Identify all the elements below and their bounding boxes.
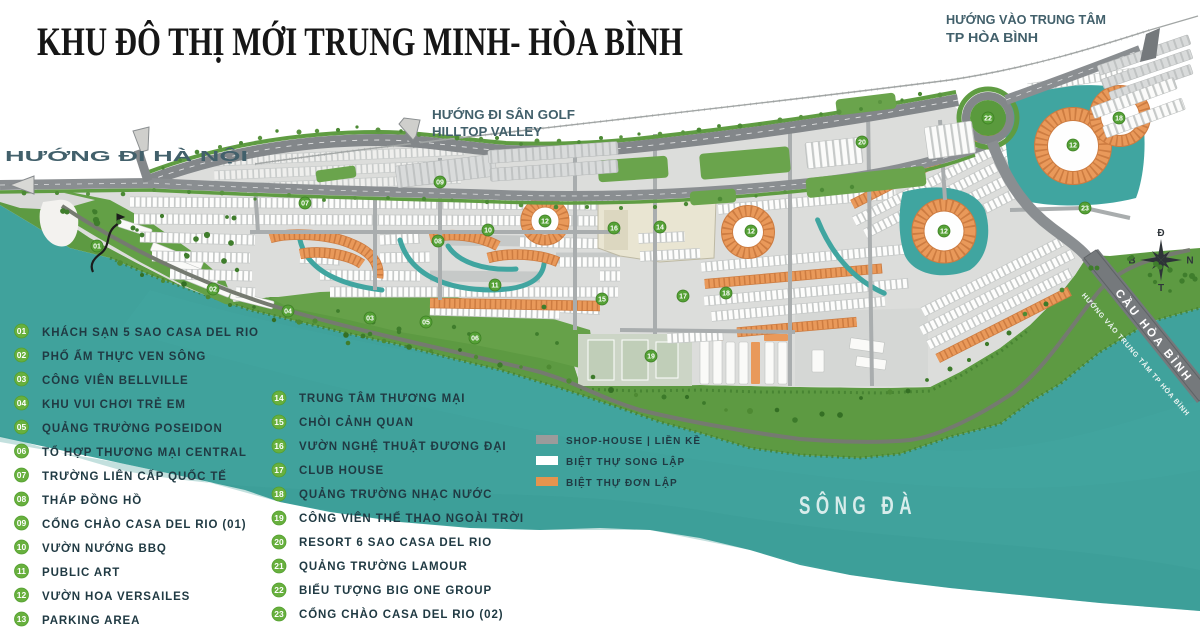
svg-text:07: 07 [17, 470, 27, 480]
svg-text:BIỆT THỰ ĐƠN LẬP: BIỆT THỰ ĐƠN LẬP [566, 476, 678, 489]
svg-text:03: 03 [17, 374, 27, 384]
svg-text:09: 09 [436, 180, 444, 187]
svg-text:10: 10 [17, 542, 27, 552]
svg-text:PARKING AREA: PARKING AREA [42, 615, 140, 627]
svg-text:12: 12 [940, 229, 948, 236]
svg-text:CÔNG VIÊN BELLVILLE: CÔNG VIÊN BELLVILLE [42, 374, 189, 387]
svg-text:CỔNG CHÀO CASA DEL RIO (01): CỔNG CHÀO CASA DEL RIO (01) [42, 518, 246, 531]
svg-text:QUẢNG TRƯỜNG POSEIDON: QUẢNG TRƯỜNG POSEIDON [42, 422, 223, 435]
svg-text:KHU VUI CHƠI TRẺ EM: KHU VUI CHƠI TRẺ EM [42, 398, 186, 411]
svg-text:02: 02 [209, 287, 217, 294]
svg-text:04: 04 [284, 309, 292, 316]
svg-text:TP HÒA BÌNH: TP HÒA BÌNH [946, 30, 1038, 45]
svg-text:01: 01 [17, 326, 27, 336]
svg-text:17: 17 [679, 294, 687, 301]
svg-text:12: 12 [541, 219, 549, 226]
svg-text:19: 19 [647, 354, 655, 361]
svg-text:HƯỚNG VÀO TRUNG TÂM: HƯỚNG VÀO TRUNG TÂM [946, 12, 1106, 27]
svg-text:10: 10 [484, 228, 492, 235]
svg-text:VƯỜN HOA VERSAILES: VƯỜN HOA VERSAILES [42, 590, 190, 603]
svg-text:Đ: Đ [1157, 228, 1164, 239]
svg-text:TRUNG TÂM THƯƠNG MẠI: TRUNG TÂM THƯƠNG MẠI [299, 392, 465, 405]
svg-text:23: 23 [1081, 206, 1089, 213]
svg-text:12: 12 [17, 590, 27, 600]
svg-text:08: 08 [434, 239, 442, 246]
svg-text:BIỂU TƯỢNG BIG ONE GROUP: BIỂU TƯỢNG BIG ONE GROUP [299, 584, 492, 597]
svg-text:09: 09 [17, 518, 27, 528]
svg-text:13: 13 [17, 614, 27, 624]
svg-text:11: 11 [17, 566, 26, 576]
svg-text:CLUB HOUSE: CLUB HOUSE [299, 465, 384, 477]
svg-text:HƯỚNG ĐI SÂN GOLF: HƯỚNG ĐI SÂN GOLF [432, 107, 575, 122]
svg-text:22: 22 [984, 116, 992, 123]
svg-text:CÔNG VIÊN THỂ THAO NGOÀI TRỜI: CÔNG VIÊN THỂ THAO NGOÀI TRỜI [299, 512, 524, 525]
svg-text:11: 11 [491, 283, 499, 290]
svg-text:N: N [1186, 256, 1193, 267]
svg-text:PUBLIC ART: PUBLIC ART [42, 567, 120, 579]
svg-text:03: 03 [366, 316, 374, 323]
svg-text:18: 18 [274, 489, 284, 499]
svg-text:SÔNG ĐÀ: SÔNG ĐÀ [799, 490, 917, 520]
svg-text:05: 05 [17, 422, 27, 432]
svg-text:QUẢNG TRƯỜNG LAMOUR: QUẢNG TRƯỜNG LAMOUR [299, 560, 468, 573]
svg-text:KHU ĐÔ THỊ MỚI TRUNG MINH- HÒA: KHU ĐÔ THỊ MỚI TRUNG MINH- HÒA BÌNH [37, 19, 683, 64]
svg-text:04: 04 [17, 398, 27, 408]
svg-text:19: 19 [274, 513, 284, 523]
svg-text:20: 20 [858, 140, 866, 147]
svg-text:12: 12 [747, 229, 755, 236]
svg-text:KHÁCH SẠN 5 SAO CASA DEL RIO: KHÁCH SẠN 5 SAO CASA DEL RIO [42, 326, 259, 339]
svg-text:12: 12 [1069, 143, 1077, 150]
svg-text:23: 23 [274, 609, 284, 619]
svg-text:SHOP-HOUSE | LIỀN KỀ: SHOP-HOUSE | LIỀN KỀ [566, 434, 701, 447]
svg-text:02: 02 [17, 350, 27, 360]
svg-text:HILLTOP VALLEY: HILLTOP VALLEY [432, 125, 543, 139]
svg-text:CỔNG CHÀO CASA DEL RIO (02): CỔNG CHÀO CASA DEL RIO (02) [299, 608, 503, 621]
svg-text:RESORT 6 SAO CASA DEL RIO: RESORT 6 SAO CASA DEL RIO [299, 537, 492, 549]
svg-text:18: 18 [1115, 116, 1123, 123]
svg-text:BIỆT THỰ SONG LẬP: BIỆT THỰ SONG LẬP [566, 455, 685, 468]
svg-text:22: 22 [274, 585, 284, 595]
svg-text:05: 05 [422, 320, 430, 327]
svg-text:CHÒI CẢNH QUAN: CHÒI CẢNH QUAN [299, 416, 414, 429]
svg-text:QUẢNG TRƯỜNG NHẠC NƯỚC: QUẢNG TRƯỜNG NHẠC NƯỚC [299, 488, 492, 501]
svg-text:17: 17 [274, 465, 284, 475]
svg-text:15: 15 [598, 297, 606, 304]
svg-text:TỔ HỢP THƯƠNG MẠI CENTRAL: TỔ HỢP THƯƠNG MẠI CENTRAL [42, 446, 247, 459]
svg-text:08: 08 [17, 494, 27, 504]
svg-text:TRƯỜNG LIÊN CẤP QUỐC TẾ: TRƯỜNG LIÊN CẤP QUỐC TẾ [42, 469, 227, 483]
svg-text:21: 21 [274, 561, 284, 571]
svg-text:THÁP ĐỒNG HỒ: THÁP ĐỒNG HỒ [42, 494, 142, 507]
svg-text:06: 06 [17, 446, 27, 456]
svg-text:15: 15 [274, 417, 284, 427]
svg-text:14: 14 [656, 225, 664, 232]
svg-text:VƯỜN NƯỚNG BBQ: VƯỜN NƯỚNG BBQ [42, 542, 167, 555]
svg-text:01: 01 [93, 244, 101, 251]
svg-text:16: 16 [274, 441, 284, 451]
svg-text:07: 07 [301, 201, 309, 208]
svg-text:06: 06 [471, 336, 479, 343]
svg-text:20: 20 [274, 537, 284, 547]
svg-text:VƯỜN NGHỆ THUẬT ĐƯƠNG ĐẠI: VƯỜN NGHỆ THUẬT ĐƯƠNG ĐẠI [299, 440, 507, 453]
svg-text:T: T [1158, 283, 1164, 294]
svg-text:14: 14 [274, 393, 284, 403]
svg-text:16: 16 [610, 226, 618, 233]
svg-text:HƯỚNG ĐI HÀ NỘI: HƯỚNG ĐI HÀ NỘI [5, 147, 248, 165]
svg-text:PHỐ ẨM THỰC VEN SÔNG: PHỐ ẨM THỰC VEN SÔNG [42, 349, 206, 363]
svg-text:18: 18 [722, 291, 730, 298]
